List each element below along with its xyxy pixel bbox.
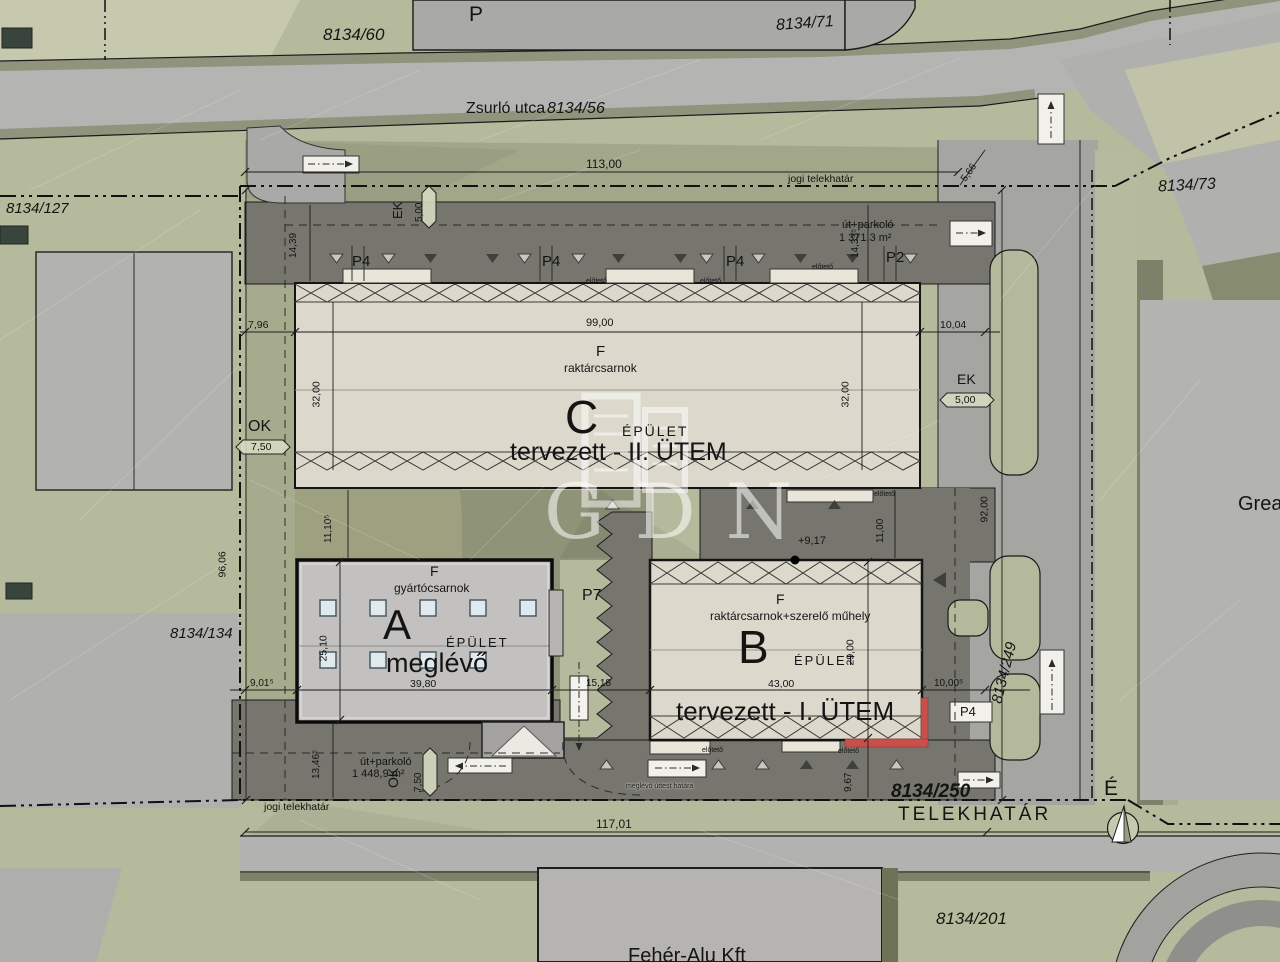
spot-level: +9,17 (798, 536, 826, 547)
canopy-label-mid: előtető (874, 491, 895, 498)
building-b-status: tervezett - I. ÜTEM (676, 698, 894, 724)
building-c-code: F (596, 344, 605, 359)
site-plan: 8134/60 P 8134/71 Zsurló utca 8134/56 11… (0, 0, 1280, 962)
watermark-text: GDN (544, 474, 822, 550)
canopy-label-3: előtető (812, 264, 833, 271)
parcel-label-8134-134: 8134/134 (170, 626, 233, 641)
street-name: Zsurló utca (466, 101, 545, 117)
building-c-epulet: ÉPÜLET (622, 424, 688, 438)
parking-row-p4-3: P4 (726, 254, 744, 269)
existing-road-boundary-label: meglévő úttest határa (626, 783, 693, 790)
dim-32-left: 32,00 (312, 381, 323, 407)
canopy-label-1: előtető (586, 278, 607, 285)
dim-ok-bottom-value: 7,50 (414, 773, 424, 792)
north-letter: É (1104, 778, 1118, 799)
dim-10-00: 10,00⁵ (934, 679, 963, 689)
parking-bottom-title: út+parkoló (360, 757, 412, 768)
building-a-letter: A (383, 604, 411, 646)
dim-14-33: 14,33⁵ (851, 229, 861, 258)
parcel-label-8134-127: 8134/127 (6, 201, 69, 216)
neighbor-building-left (36, 252, 232, 490)
dim-ok-left-value: 7,50 (251, 442, 271, 453)
dim-29-00: 29,00 (846, 639, 857, 665)
dim-13-46: 13,46⁵ (312, 750, 322, 779)
dim-25-10: 25,10 (319, 635, 330, 661)
parking-top-area: 1 371,3 m² (839, 233, 892, 244)
dim-11-00: 11,00 (876, 519, 886, 543)
building-a-code: F (430, 564, 439, 578)
neighbor-right-label: Grea (1238, 494, 1280, 514)
building-c-status: tervezett - II. ÜTEM (510, 440, 727, 465)
dim-117: 117,01 (596, 818, 632, 830)
boundary-label-top: jogi telekhatár (788, 174, 853, 185)
dim-32-right: 32,00 (841, 381, 852, 407)
dim-99: 99,00 (586, 318, 614, 329)
dim-ok-bottom: OK (386, 768, 400, 788)
dim-9-01: 9,01⁵ (250, 679, 274, 689)
building-b-function: raktárcsarnok+szerelő műhely (710, 610, 870, 622)
parking-lot-p-label: P (469, 4, 483, 25)
building-a-status: meglévő (386, 650, 488, 677)
parcel-label-8134-201: 8134/201 (936, 910, 1007, 927)
dim-ek-top: EK (391, 202, 404, 219)
parcel-label-8134-250: 8134/250 (891, 782, 970, 801)
parking-p4-east: P4 (960, 705, 976, 718)
dim-39-80: 39,80 (410, 679, 436, 690)
parking-row-p4-1: P4 (352, 254, 370, 269)
dim-ek-right: EK (957, 372, 976, 386)
parcel-8134-134-area (0, 613, 242, 808)
dim-96-06: 96,06 (218, 551, 229, 577)
parking-row-p4-2: P4 (542, 254, 560, 269)
dim-7-96: 7,96 (248, 320, 268, 331)
dim-43-00: 43,00 (768, 679, 794, 690)
neighbor-bottom-label: Fehér-Alu Kft (628, 946, 746, 962)
canopy-label-2: előtető (700, 278, 721, 285)
neighbor-lot-right (1140, 300, 1280, 800)
boundary-label-telekhatar: TELEKHATÁR (898, 805, 1051, 824)
dim-10-04: 10,04 (940, 320, 966, 331)
boundary-label-bottom: jogi telekhatár (264, 802, 329, 813)
parking-p7-label: P7 (582, 588, 602, 604)
building-b-code: F (776, 592, 785, 606)
building-b-letter: B (738, 624, 769, 670)
building-a-function: gyártócsarnok (394, 582, 469, 594)
dim-15-18: 15,18 (586, 679, 611, 689)
dim-ok-left: OK (248, 419, 271, 435)
dim-9-67: 9,67 (844, 773, 854, 792)
canopy-label-b2: előtető (838, 748, 859, 755)
parcel-label-8134-73: 8134/73 (1158, 176, 1217, 195)
parking-row-p2: P2 (886, 250, 904, 265)
parking-lot-p (413, 0, 915, 50)
street-parcel: 8134/56 (547, 101, 605, 117)
dim-92-00: 92,00 (980, 496, 991, 522)
dim-14-39: 14,39 (289, 233, 299, 258)
building-c-function: raktárcsarnok (564, 362, 637, 374)
dim-11-10: 11,10⁵ (324, 515, 334, 543)
dim-113: 113,00 (586, 158, 622, 170)
building-c-letter: C (565, 394, 598, 440)
dim-ek-top-value: 5,00 (415, 203, 425, 222)
parcel-label-8134-60: 8134/60 (323, 26, 384, 43)
dim-ek-right-value: 5,00 (955, 395, 975, 406)
canopy-label-b1: előtető (702, 747, 723, 754)
